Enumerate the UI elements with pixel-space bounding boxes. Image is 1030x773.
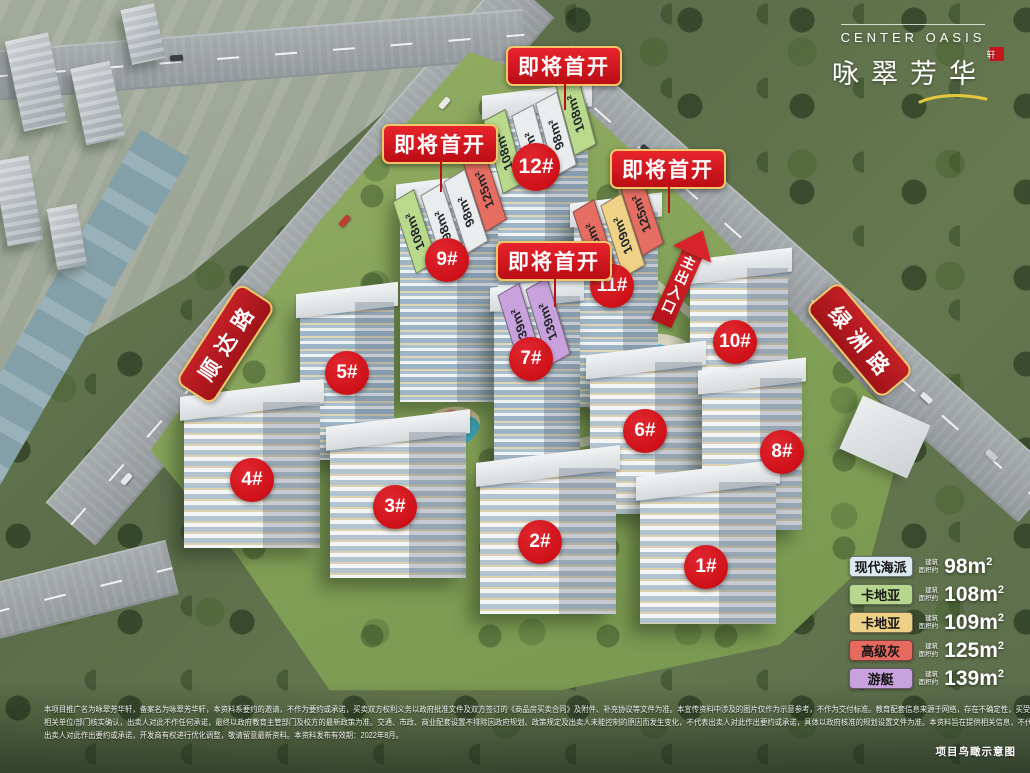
legend-area-value: 108m2 [944,584,1004,605]
banner-opening-soon-12: 即将首开 [506,46,622,86]
aerial-render: 108m² 98m² 98m² 108m² 108m² 98m² 98m² 12… [0,0,1030,773]
banner-pointer-line [554,279,556,307]
legend-color-chip: 卡地亚 [849,584,913,605]
building-badge-4: 4# [230,458,274,502]
disclaimer-line-1: 本项目推广名为咏翠芳华轩，备案名为咏翠芳华轩，本资料系要约的邀请，不作为要约或承… [44,703,1030,716]
legend-area-value: 109m2 [944,612,1004,633]
legend-area-value: 139m2 [944,668,1004,689]
building-badge-7: 7# [509,337,553,381]
brand-logo: CENTER OASIS 咏翠芳华轩 [832,24,994,111]
legend-area-prefix: 建筑面积约 [919,559,939,574]
building-badge-8: 8# [760,430,804,474]
disclaimer-line-2: 相关单位/部门核实确认，出卖人对此不作任何承诺，最终以政府教育主管部门及校方的最… [44,716,1030,729]
building-badge-12: 12# [512,143,560,191]
legend-row: 卡地亚 建筑面积约 109m2 [849,612,1004,633]
brush-stroke-icon [918,92,988,106]
legend-area-prefix: 建筑面积约 [919,671,939,686]
legend: 现代海派 建筑面积约 98m2 卡地亚 建筑面积约 108m2 卡地亚 建筑面积… [849,556,1004,689]
legend-row: 游艇 建筑面积约 139m2 [849,668,1004,689]
building-badge-9: 9# [425,238,469,282]
legend-row: 现代海派 建筑面积约 98m2 [849,556,1004,577]
legend-color-chip: 现代海派 [849,556,913,577]
banner-opening-soon-9: 即将首开 [382,124,498,164]
building-badge-2: 2# [518,520,562,564]
banner-pointer-line [440,162,442,192]
car [170,55,183,62]
building-badge-5: 5# [325,351,369,395]
building-badge-6: 6# [623,409,667,453]
building-badge-3: 3# [373,485,417,529]
legend-color-chip: 高级灰 [849,640,913,661]
disclaimer-line-3: 出卖人对此作出要约或承诺，开发商有权进行优化调整，敬请留意最新资料。本资料发布有… [44,729,1030,742]
legend-row: 卡地亚 建筑面积约 108m2 [849,584,1004,605]
legend-area-prefix: 建筑面积约 [919,615,939,630]
banner-pointer-line [564,84,566,110]
legend-row: 高级灰 建筑面积约 125m2 [849,640,1004,661]
legend-color-chip: 卡地亚 [849,612,913,633]
brand-logo-superscript: 轩 [990,47,1004,61]
caption-birdseye: 项目鸟瞰示意图 [936,744,1017,759]
building-badge-10: 10# [713,320,757,364]
banner-opening-soon-7: 即将首开 [496,241,612,281]
brand-logo-en: CENTER OASIS [841,24,986,45]
banner-pointer-line [668,187,670,213]
building-badge-1: 1# [684,545,728,589]
brand-logo-cn: 咏翠芳华轩 [832,52,994,91]
disclaimer-text: 本项目推广名为咏翠芳华轩，备案名为咏翠芳华轩，本资料系要约的邀请，不作为要约或承… [44,703,1030,742]
banner-opening-soon-11: 即将首开 [610,149,726,189]
legend-area-prefix: 建筑面积约 [919,643,939,658]
legend-color-chip: 游艇 [849,668,913,689]
legend-area-prefix: 建筑面积约 [919,587,939,602]
legend-area-value: 125m2 [944,640,1004,661]
legend-area-value: 98m2 [944,556,992,577]
